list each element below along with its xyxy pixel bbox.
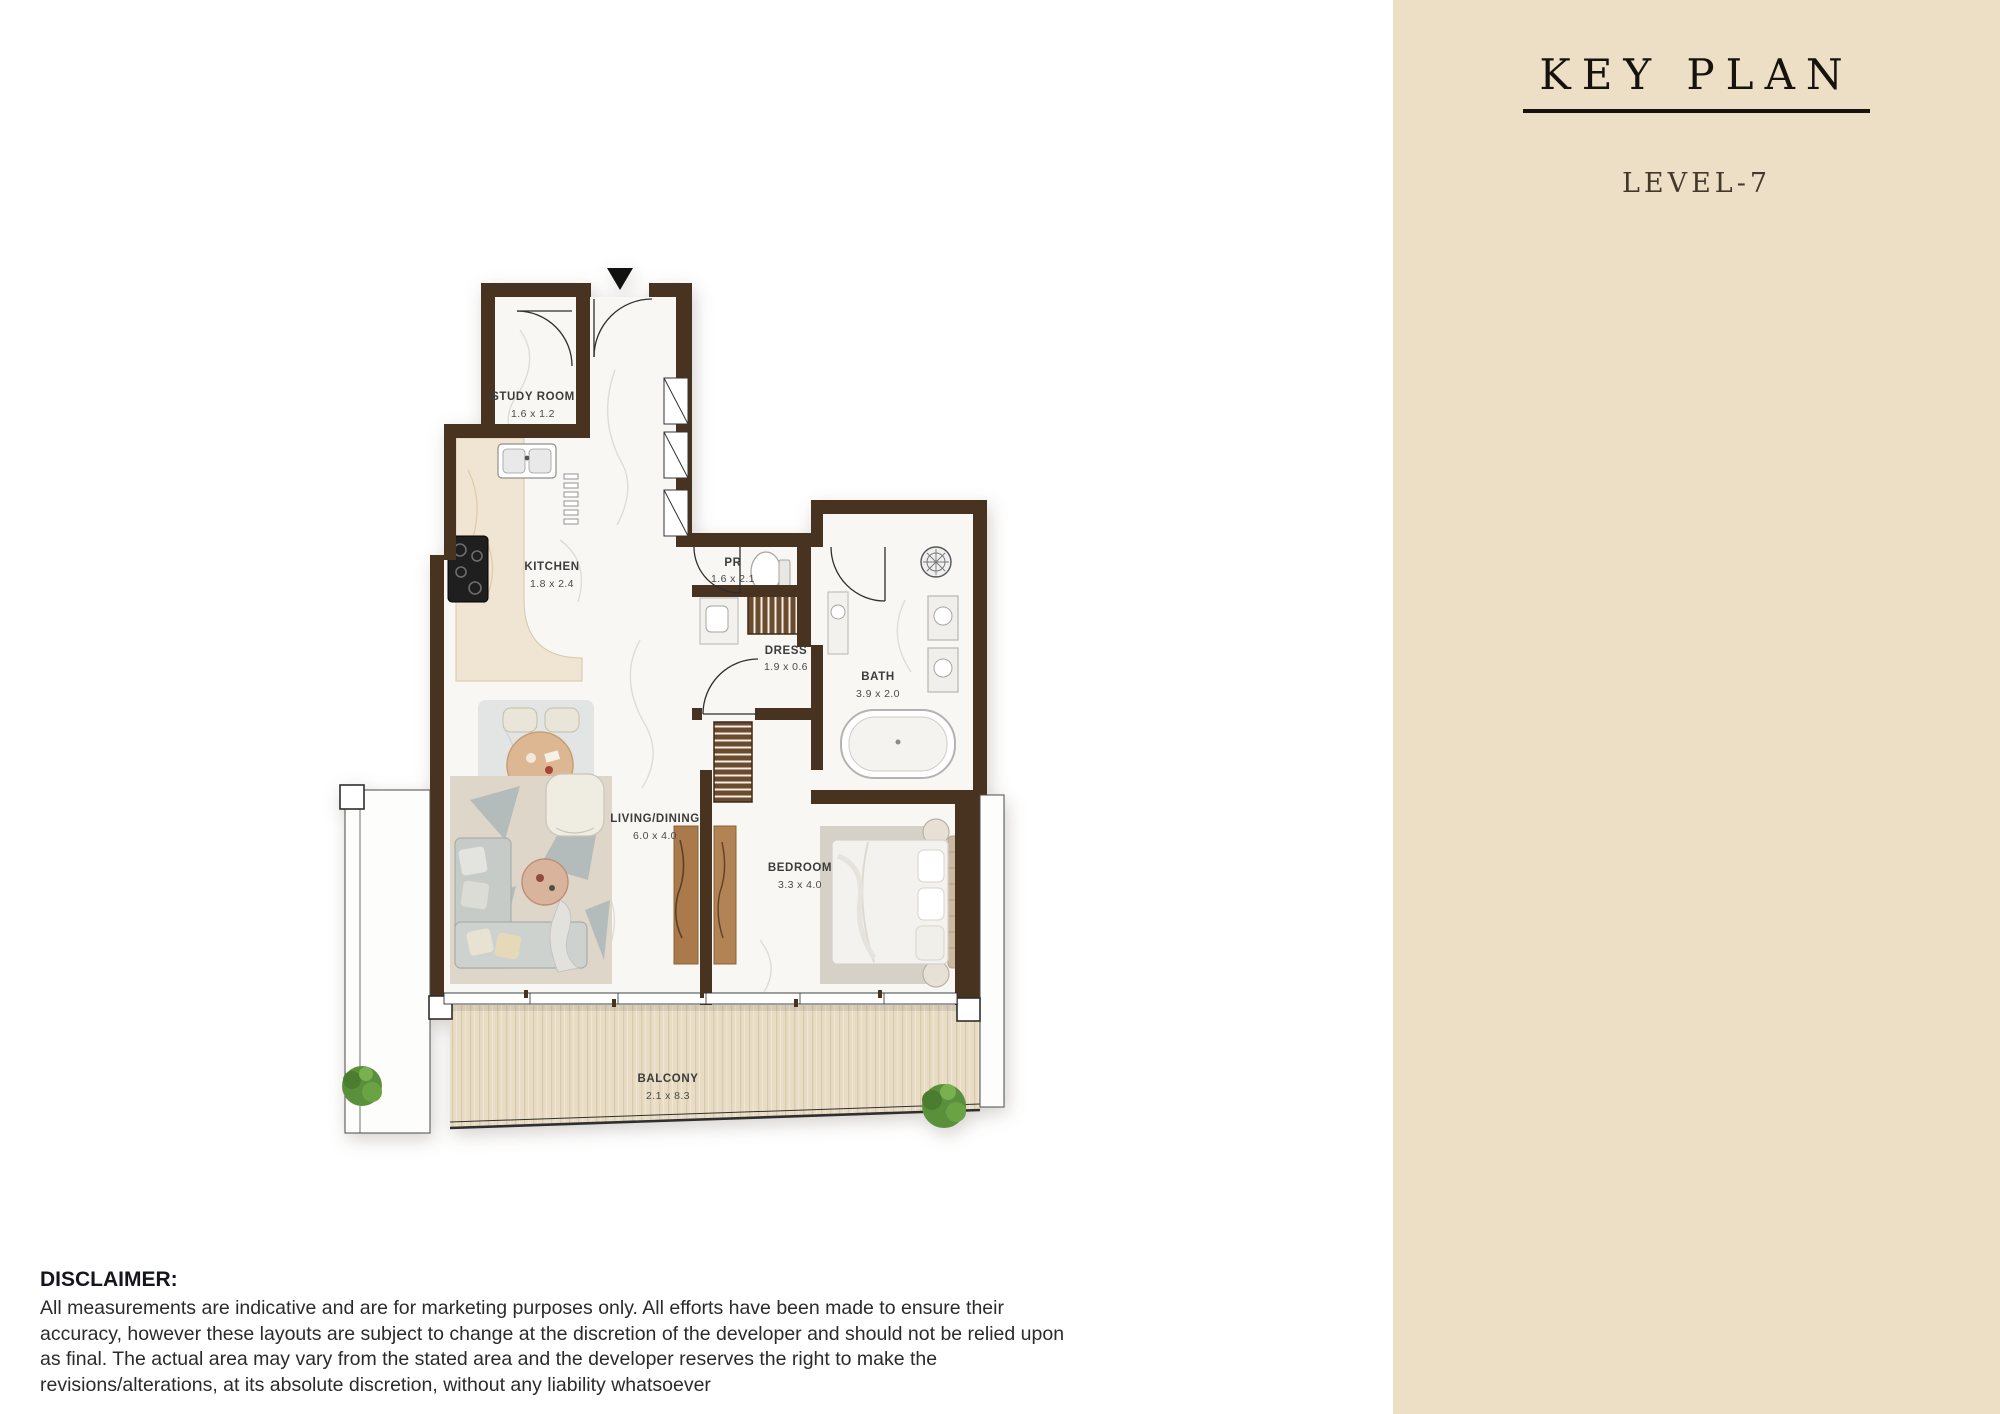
key-plan-title: KEY PLAN (1523, 50, 1869, 113)
living-room-furniture (450, 774, 612, 984)
level-label: LEVEL-7 (1393, 168, 2000, 199)
floor-plan: STUDY ROOM 1.6 x 1.2 KITCHEN 1.8 x 2.4 P… (330, 258, 1030, 1180)
room-label-bedroom: BEDROOM (768, 862, 832, 874)
room-dims-living: 6.0 x 4.0 (633, 830, 677, 842)
room-label-study: STUDY ROOM (491, 391, 575, 403)
room-label-bath: BATH (861, 671, 895, 683)
room-label-kitchen: KITCHEN (524, 561, 579, 573)
disclaimer: DISCLAIMER: All measurements are indicat… (40, 1268, 1080, 1399)
hall-closet-icon (664, 378, 688, 536)
disclaimer-heading: DISCLAIMER: (40, 1268, 1080, 1292)
plant-icon (922, 1084, 966, 1128)
room-label-living: LIVING/DINING (610, 813, 700, 825)
plant-icon (342, 1066, 382, 1106)
entry-arrow-icon (607, 268, 633, 290)
bedroom-wardrobe (714, 722, 752, 802)
room-label-pr: PR (724, 557, 741, 569)
room-dims-study: 1.6 x 1.2 (511, 408, 555, 420)
room-dims-balcony: 2.1 x 8.3 (646, 1090, 690, 1102)
room-dims-kitchen: 1.8 x 2.4 (530, 578, 574, 590)
room-dims-pr: 1.6 x 2.1 (711, 573, 755, 585)
room-label-balcony: BALCONY (637, 1073, 698, 1085)
key-plan-sidebar: KEY PLAN LEVEL-7 (1393, 0, 2000, 1414)
room-dims-bedroom: 3.3 x 4.0 (778, 879, 822, 891)
kitchen-sink-icon (498, 444, 556, 478)
room-label-dress: DRESS (765, 645, 808, 657)
room-dims-dress: 1.9 x 0.6 (764, 661, 808, 673)
bedroom-furniture (820, 819, 960, 987)
floorplan-page: STUDY ROOM 1.6 x 1.2 KITCHEN 1.8 x 2.4 P… (0, 0, 2000, 1414)
room-dims-bath: 3.9 x 2.0 (856, 688, 900, 700)
disclaimer-body: All measurements are indicative and are … (40, 1296, 1080, 1399)
